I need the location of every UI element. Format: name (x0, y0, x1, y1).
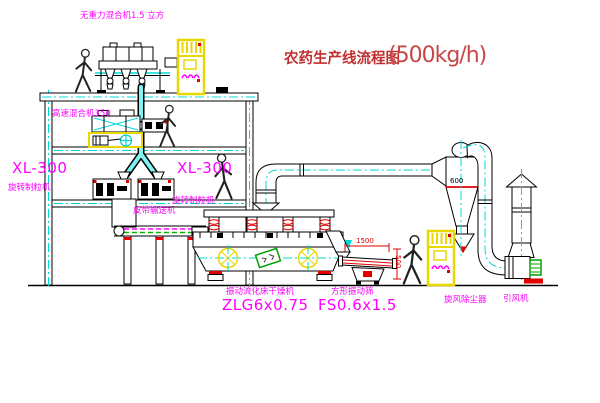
induced-draft-fan (505, 257, 543, 284)
label-fan: 引风机 (503, 295, 529, 304)
dim-sieve-height: 500 (394, 255, 401, 268)
control-cabinet-upper (178, 40, 204, 94)
label-granulator-right-model: XL-300 (177, 161, 232, 176)
label-granulator-left-model: XL-300 (12, 161, 67, 176)
dim-sieve-length: 1500 (356, 238, 374, 245)
exhaust-duct (253, 164, 434, 217)
fluid-bed-dryer (192, 210, 343, 281)
label-granulator-left-name: 旋转制粒机 (8, 184, 51, 193)
mixer-drive-stand (89, 133, 142, 147)
person-figure-roof (76, 49, 91, 91)
rotary-granulators (93, 172, 174, 199)
label-sieve-model: FS0.6x1.5 (318, 298, 397, 313)
label-belt-conveyor: 皮带输送机 (133, 207, 176, 216)
dim-cyclone-diameter: 600 (450, 178, 463, 185)
page-title-capacity: (500kg/h) (388, 45, 486, 67)
label-dryer-model: ZLG6x0.75 (222, 298, 309, 313)
roof-vent (216, 87, 228, 93)
pesticide-line-flow-diagram: 无重力混合机1.5 立方 高速混合机350 XL-300 旋转制粒机 XL-30… (0, 0, 600, 403)
label-gravity-mixer: 无重力混合机1.5 立方 (80, 12, 164, 21)
person-figure-ground (404, 236, 421, 284)
label-cyclone: 旋风除尘器 (444, 296, 487, 305)
label-granulator-right-name: 旋转制粒机 (172, 197, 215, 206)
page-title: 农药生产线流程图 (284, 52, 400, 67)
gravity-free-mixer (95, 43, 177, 93)
control-cabinet-lower (428, 231, 454, 285)
label-high-speed-mixer: 高速混合机350 (52, 110, 111, 119)
